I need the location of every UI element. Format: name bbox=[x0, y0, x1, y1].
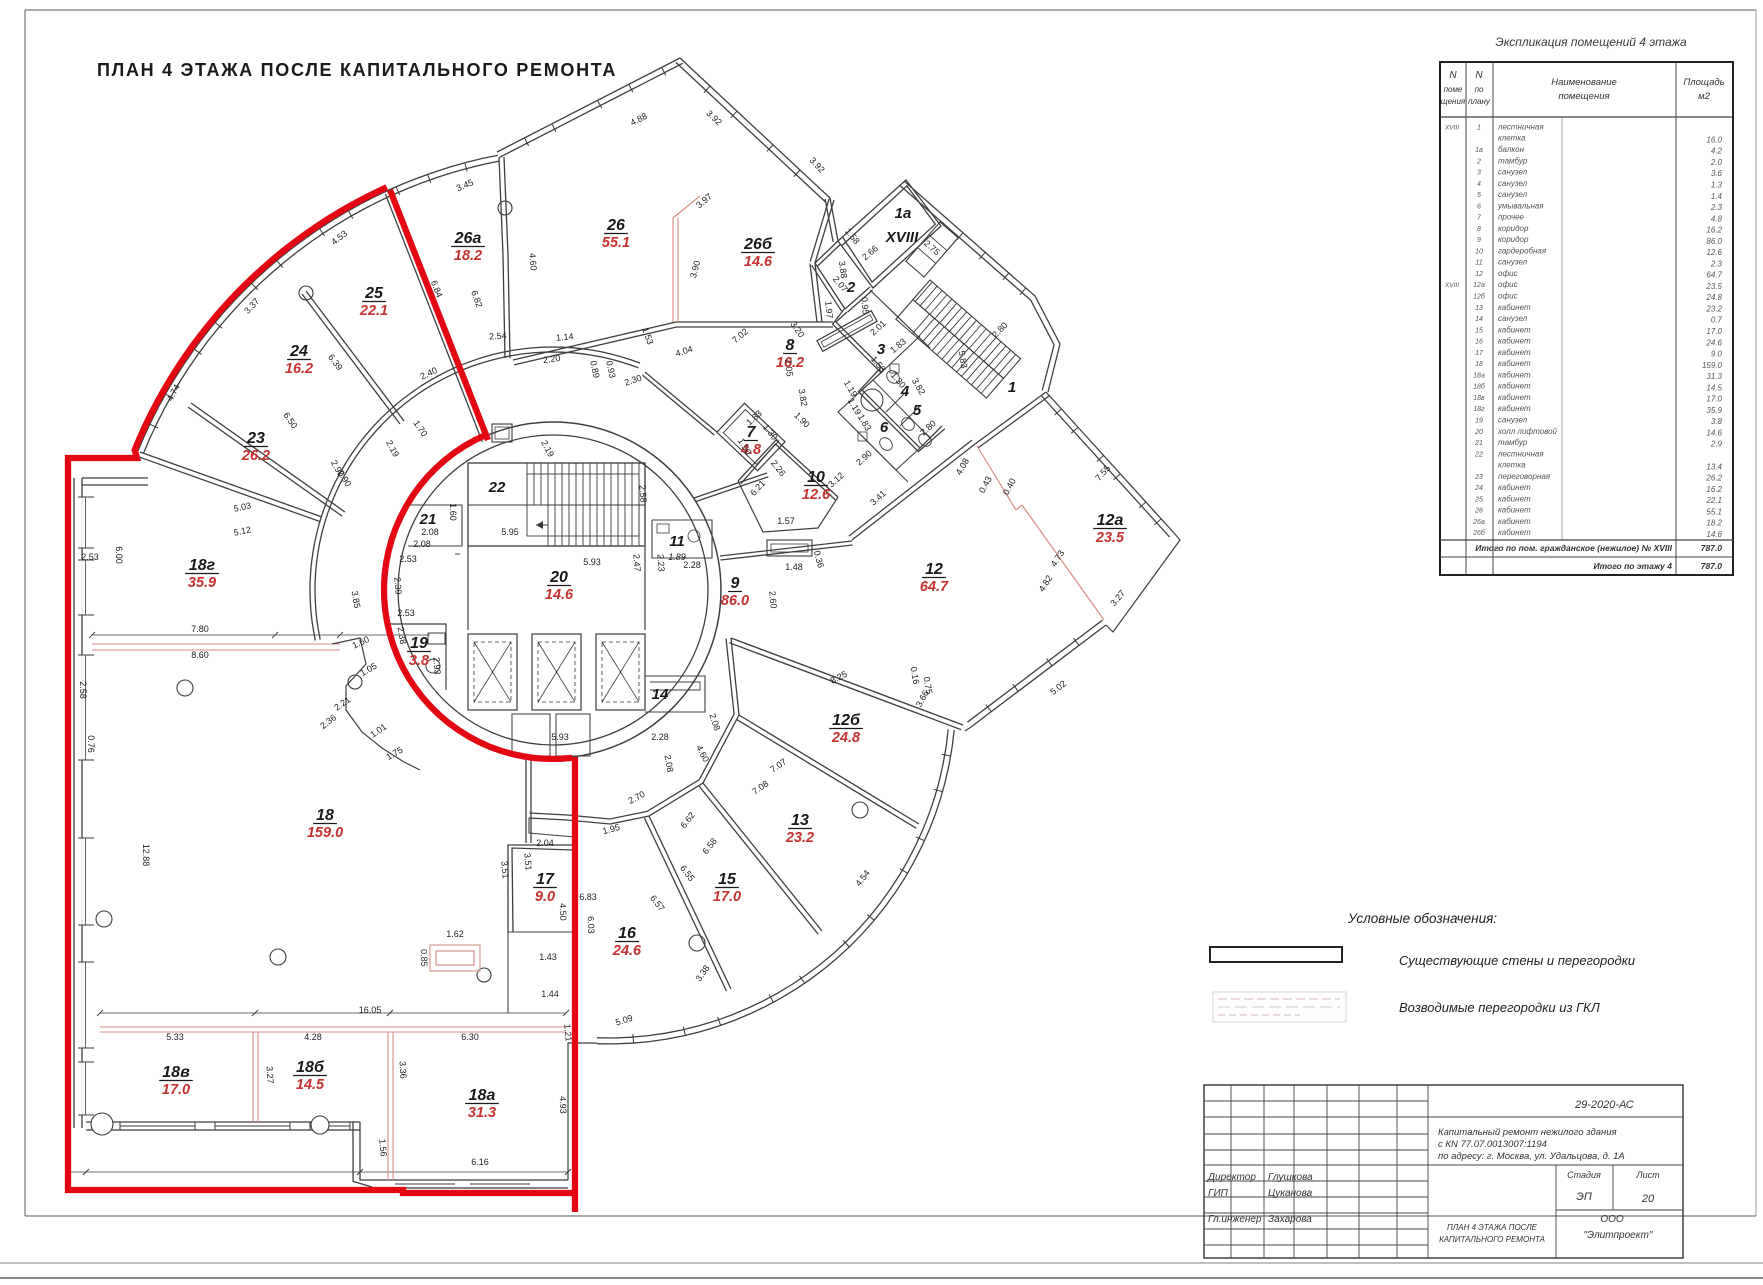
svg-text:1.60: 1.60 bbox=[448, 503, 458, 521]
svg-text:9.0: 9.0 bbox=[1711, 350, 1723, 359]
svg-text:16.2: 16.2 bbox=[285, 361, 313, 377]
svg-text:23: 23 bbox=[246, 430, 265, 447]
svg-text:2.93: 2.93 bbox=[431, 657, 442, 675]
svg-text:2.04: 2.04 bbox=[536, 838, 554, 848]
svg-text:6.00: 6.00 bbox=[114, 546, 124, 564]
svg-text:умывальная: умывальная bbox=[1497, 201, 1544, 210]
svg-text:9.0: 9.0 bbox=[535, 889, 555, 905]
svg-text:159.0: 159.0 bbox=[1702, 361, 1723, 370]
svg-text:1.56: 1.56 bbox=[377, 1139, 388, 1157]
svg-text:санузел: санузел bbox=[1498, 314, 1528, 323]
svg-text:26: 26 bbox=[606, 217, 625, 234]
svg-text:кабинет: кабинет bbox=[1498, 382, 1531, 391]
svg-text:26.2: 26.2 bbox=[241, 448, 270, 464]
svg-text:31.3: 31.3 bbox=[468, 1105, 496, 1121]
svg-text:4.28: 4.28 bbox=[304, 1032, 322, 1042]
svg-text:XVIII: XVIII bbox=[1444, 282, 1459, 289]
svg-text:14.5: 14.5 bbox=[1706, 383, 1722, 392]
svg-text:офис: офис bbox=[1498, 269, 1518, 278]
svg-text:Площадь: Площадь bbox=[1683, 77, 1724, 88]
svg-text:1.43: 1.43 bbox=[539, 952, 557, 962]
svg-text:тамбур: тамбур bbox=[1498, 438, 1528, 447]
svg-text:тамбур: тамбур bbox=[1498, 156, 1528, 165]
svg-text:20: 20 bbox=[1641, 1193, 1655, 1205]
svg-text:18: 18 bbox=[316, 807, 334, 824]
svg-text:санузел: санузел bbox=[1498, 179, 1528, 188]
svg-text:2.08: 2.08 bbox=[413, 539, 431, 549]
svg-text:прочее: прочее bbox=[1498, 213, 1525, 222]
svg-text:холл лифтовой: холл лифтовой bbox=[1497, 427, 1558, 436]
svg-text:9: 9 bbox=[1477, 237, 1481, 244]
svg-text:24: 24 bbox=[289, 343, 308, 360]
svg-text:коридор: коридор bbox=[1498, 235, 1529, 244]
svg-text:24: 24 bbox=[1474, 485, 1483, 492]
svg-text:Капитальный ремонт нежилого зд: Капитальный ремонт нежилого здания bbox=[1438, 1127, 1617, 1138]
svg-text:XVIII: XVIII bbox=[885, 229, 919, 246]
svg-text:13: 13 bbox=[1475, 305, 1483, 312]
svg-text:клетка: клетка bbox=[1498, 461, 1526, 470]
svg-text:2.47: 2.47 bbox=[631, 554, 642, 572]
svg-text:35.9: 35.9 bbox=[1706, 406, 1722, 415]
svg-text:3.51: 3.51 bbox=[522, 853, 533, 871]
svg-text:17.0: 17.0 bbox=[1706, 327, 1722, 336]
svg-text:кабинет: кабинет bbox=[1498, 393, 1531, 402]
svg-text:18г: 18г bbox=[1473, 406, 1485, 413]
svg-text:Стадия: Стадия bbox=[1567, 1170, 1601, 1180]
svg-text:20: 20 bbox=[1474, 429, 1483, 436]
svg-text:86.0: 86.0 bbox=[1706, 237, 1722, 246]
svg-text:офис: офис bbox=[1498, 292, 1518, 301]
svg-text:8.60: 8.60 bbox=[191, 650, 209, 660]
svg-text:18б: 18б bbox=[1473, 383, 1486, 391]
svg-text:2.58: 2.58 bbox=[78, 681, 88, 699]
svg-text:22: 22 bbox=[488, 479, 506, 496]
svg-text:18.2: 18.2 bbox=[1706, 519, 1722, 528]
svg-text:2.0: 2.0 bbox=[1710, 158, 1723, 167]
svg-text:2.3: 2.3 bbox=[1710, 259, 1723, 268]
svg-text:24.6: 24.6 bbox=[612, 943, 642, 959]
svg-text:переговорная: переговорная bbox=[1498, 472, 1551, 481]
svg-text:Гл.инженер: Гл.инженер bbox=[1208, 1214, 1262, 1225]
svg-text:2.23: 2.23 bbox=[655, 554, 666, 572]
svg-text:23.2: 23.2 bbox=[785, 830, 814, 846]
svg-text:23.5: 23.5 bbox=[1705, 282, 1722, 291]
svg-text:санузел: санузел bbox=[1498, 168, 1528, 177]
svg-text:КАПИТАЛЬНОГО РЕМОНТА: КАПИТАЛЬНОГО РЕМОНТА bbox=[1439, 1235, 1545, 1244]
svg-text:XVIII: XVIII bbox=[1444, 124, 1459, 131]
svg-text:1.57: 1.57 bbox=[777, 516, 795, 526]
svg-text:клетка: клетка bbox=[1498, 134, 1526, 143]
svg-text:3.27: 3.27 bbox=[265, 1066, 276, 1084]
svg-text:4: 4 bbox=[1477, 181, 1481, 188]
svg-text:кабинет: кабинет bbox=[1498, 303, 1531, 312]
svg-text:17.0: 17.0 bbox=[713, 889, 741, 905]
svg-text:17.0: 17.0 bbox=[162, 1082, 190, 1098]
svg-text:плану: плану bbox=[1468, 97, 1491, 106]
svg-text:2.28: 2.28 bbox=[651, 732, 669, 742]
svg-text:5: 5 bbox=[913, 402, 922, 419]
svg-text:17.0: 17.0 bbox=[1706, 395, 1722, 404]
svg-text:кабинет: кабинет bbox=[1498, 517, 1531, 526]
svg-text:11: 11 bbox=[669, 533, 685, 550]
svg-text:кабинет: кабинет bbox=[1498, 483, 1531, 492]
svg-text:0.95: 0.95 bbox=[859, 297, 870, 315]
svg-text:поме: поме bbox=[1444, 85, 1463, 94]
svg-text:13: 13 bbox=[791, 812, 809, 829]
svg-text:1.48: 1.48 bbox=[785, 562, 803, 572]
svg-text:15: 15 bbox=[1475, 327, 1483, 334]
svg-text:64.7: 64.7 bbox=[920, 579, 949, 595]
svg-text:9: 9 bbox=[731, 575, 740, 592]
svg-text:щения: щения bbox=[1441, 97, 1466, 106]
svg-text:балкон: балкон bbox=[1498, 145, 1525, 154]
svg-text:13.4: 13.4 bbox=[1706, 462, 1722, 471]
svg-text:16: 16 bbox=[618, 925, 636, 942]
svg-text:12.88: 12.88 bbox=[141, 844, 151, 867]
svg-text:22.1: 22.1 bbox=[359, 303, 388, 319]
svg-text:2.05: 2.05 bbox=[783, 359, 794, 377]
svg-text:21: 21 bbox=[419, 511, 437, 528]
svg-text:2.28: 2.28 bbox=[683, 560, 701, 570]
svg-text:16.2: 16.2 bbox=[1706, 485, 1722, 494]
svg-text:26а: 26а bbox=[454, 230, 482, 247]
svg-text:3.8: 3.8 bbox=[409, 653, 430, 669]
svg-text:86.0: 86.0 bbox=[721, 593, 749, 609]
svg-text:14.6: 14.6 bbox=[744, 254, 773, 270]
svg-text:20: 20 bbox=[549, 569, 568, 586]
svg-text:14.5: 14.5 bbox=[296, 1077, 325, 1093]
svg-text:Экспликация помещений 4 этажа: Экспликация помещений 4 этажа bbox=[1495, 35, 1687, 49]
svg-text:5.95: 5.95 bbox=[501, 527, 519, 537]
svg-text:1а: 1а bbox=[1475, 147, 1483, 154]
svg-text:Глушкова: Глушкова bbox=[1268, 1172, 1313, 1183]
svg-text:2.60: 2.60 bbox=[767, 591, 778, 609]
svg-text:5.33: 5.33 bbox=[166, 1032, 184, 1042]
svg-text:Существующие стены и перегород: Существующие стены и перегородки bbox=[1399, 953, 1635, 968]
svg-text:5: 5 bbox=[1477, 192, 1481, 199]
svg-text:Директор: Директор bbox=[1207, 1172, 1256, 1183]
svg-text:21: 21 bbox=[1474, 440, 1483, 447]
svg-text:1.44: 1.44 bbox=[541, 989, 559, 999]
svg-text:26: 26 bbox=[1474, 508, 1483, 515]
svg-text:22.1: 22.1 bbox=[1705, 496, 1722, 505]
svg-text:16.2: 16.2 bbox=[1706, 226, 1722, 235]
svg-text:Наименование: Наименование bbox=[1551, 77, 1617, 88]
svg-text:коридор: коридор bbox=[1498, 224, 1529, 233]
svg-text:14: 14 bbox=[652, 686, 669, 703]
svg-text:6: 6 bbox=[1477, 203, 1481, 210]
svg-text:17: 17 bbox=[1475, 350, 1484, 357]
svg-text:23.2: 23.2 bbox=[1705, 304, 1722, 313]
svg-text:6.83: 6.83 bbox=[579, 892, 597, 902]
svg-text:18в: 18в bbox=[162, 1064, 190, 1081]
svg-text:кабинет: кабинет bbox=[1498, 325, 1531, 334]
svg-text:23.5: 23.5 bbox=[1095, 530, 1125, 546]
svg-text:24.8: 24.8 bbox=[1705, 293, 1722, 302]
svg-text:5.93: 5.93 bbox=[583, 557, 601, 567]
svg-text:Цуканова: Цуканова bbox=[1268, 1188, 1313, 1199]
svg-text:6: 6 bbox=[880, 419, 889, 436]
svg-text:15: 15 bbox=[718, 871, 737, 888]
svg-text:ЭП: ЭП bbox=[1576, 1191, 1592, 1203]
svg-text:1: 1 bbox=[1008, 379, 1016, 396]
svg-text:6.16: 6.16 bbox=[471, 1157, 489, 1167]
svg-text:1.62: 1.62 bbox=[446, 929, 464, 939]
svg-text:кабинет: кабинет bbox=[1498, 370, 1531, 379]
svg-text:24.6: 24.6 bbox=[1705, 338, 1722, 347]
svg-text:55.1: 55.1 bbox=[1706, 507, 1722, 516]
svg-text:офис: офис bbox=[1498, 280, 1518, 289]
svg-text:159.0: 159.0 bbox=[307, 825, 343, 841]
svg-text:кабинет: кабинет bbox=[1498, 528, 1531, 537]
svg-text:2.54: 2.54 bbox=[489, 331, 507, 342]
svg-text:2.3: 2.3 bbox=[1710, 203, 1723, 212]
svg-text:12.6: 12.6 bbox=[802, 487, 831, 503]
svg-text:санузел: санузел bbox=[1498, 415, 1528, 424]
svg-text:35.9: 35.9 bbox=[188, 575, 216, 591]
svg-text:2.08: 2.08 bbox=[421, 527, 439, 537]
svg-text:2.53: 2.53 bbox=[399, 554, 417, 564]
svg-text:2.53: 2.53 bbox=[81, 552, 99, 562]
svg-text:"Элитпроект": "Элитпроект" bbox=[1584, 1230, 1653, 1241]
svg-text:12б: 12б bbox=[1473, 293, 1486, 301]
svg-text:18в: 18в bbox=[1473, 395, 1485, 402]
svg-text:26.2: 26.2 bbox=[1705, 474, 1722, 483]
svg-text:1а: 1а bbox=[895, 205, 912, 222]
svg-text:кабинет: кабинет bbox=[1498, 337, 1531, 346]
svg-text:787.0: 787.0 bbox=[1701, 561, 1723, 571]
svg-text:25: 25 bbox=[1474, 496, 1483, 503]
svg-text:8: 8 bbox=[786, 337, 795, 354]
svg-text:12а: 12а bbox=[1097, 512, 1124, 529]
svg-text:по: по bbox=[1475, 85, 1484, 94]
svg-text:12.6: 12.6 bbox=[1706, 248, 1722, 257]
svg-text:с КN 77.07.0013007:1194: с КN 77.07.0013007:1194 bbox=[1438, 1139, 1547, 1150]
svg-text:лестничная: лестничная bbox=[1497, 449, 1544, 458]
svg-text:1.14: 1.14 bbox=[556, 331, 574, 342]
svg-text:Возводимые перегородки из ГКЛ: Возводимые перегородки из ГКЛ bbox=[1399, 1000, 1600, 1015]
svg-text:N: N bbox=[1449, 70, 1457, 81]
svg-text:3.51: 3.51 bbox=[499, 861, 510, 879]
svg-text:64.7: 64.7 bbox=[1706, 271, 1722, 280]
svg-text:26б: 26б bbox=[1472, 529, 1486, 537]
svg-text:1.21: 1.21 bbox=[562, 1024, 573, 1042]
svg-text:ГИП: ГИП bbox=[1208, 1188, 1229, 1199]
svg-text:31.3: 31.3 bbox=[1706, 372, 1722, 381]
svg-text:Итого по пом. гражданское (неж: Итого по пом. гражданское (нежилое) № XV… bbox=[1475, 543, 1672, 553]
svg-text:12: 12 bbox=[925, 561, 943, 578]
svg-text:2.58: 2.58 bbox=[637, 485, 648, 503]
svg-text:26б: 26б bbox=[743, 236, 773, 253]
svg-text:помещения: помещения bbox=[1558, 91, 1609, 102]
svg-text:1: 1 bbox=[1477, 124, 1481, 131]
svg-text:кабинет: кабинет bbox=[1498, 494, 1531, 503]
svg-text:6.30: 6.30 bbox=[461, 1032, 479, 1042]
svg-text:24.8: 24.8 bbox=[831, 730, 861, 746]
svg-text:Условные обозначения:: Условные обозначения: bbox=[1347, 911, 1497, 926]
svg-text:18.2: 18.2 bbox=[454, 248, 482, 264]
svg-text:4.60: 4.60 bbox=[527, 253, 538, 271]
svg-text:N: N bbox=[1475, 70, 1483, 81]
svg-text:25: 25 bbox=[364, 285, 384, 302]
svg-text:Итого по этажу 4: Итого по этажу 4 bbox=[1593, 561, 1672, 571]
svg-text:10: 10 bbox=[807, 469, 825, 486]
svg-text:18б: 18б bbox=[296, 1059, 325, 1076]
svg-text:18а: 18а bbox=[1473, 372, 1485, 379]
svg-text:3.6: 3.6 bbox=[1711, 169, 1723, 178]
svg-text:санузел: санузел bbox=[1498, 258, 1528, 267]
svg-text:0.7: 0.7 bbox=[1711, 316, 1723, 325]
svg-text:11: 11 bbox=[1475, 260, 1482, 267]
svg-text:14.6: 14.6 bbox=[545, 587, 574, 603]
svg-text:2.39: 2.39 bbox=[392, 577, 403, 595]
svg-text:ООО: ООО bbox=[1600, 1214, 1624, 1225]
svg-text:кабинет: кабинет bbox=[1498, 506, 1531, 515]
svg-text:по адресу: г. Москва, ул. Удал: по адресу: г. Москва, ул. Удальцова, д. … bbox=[1438, 1151, 1625, 1162]
svg-text:19: 19 bbox=[410, 635, 428, 652]
svg-text:Захарова: Захарова bbox=[1268, 1214, 1312, 1225]
svg-text:7.80: 7.80 bbox=[191, 624, 209, 634]
svg-text:м2: м2 bbox=[1698, 91, 1711, 102]
svg-text:14: 14 bbox=[1475, 316, 1483, 323]
svg-text:2: 2 bbox=[1476, 158, 1481, 165]
svg-text:16.0: 16.0 bbox=[1706, 135, 1722, 144]
svg-text:2.9: 2.9 bbox=[1710, 440, 1723, 449]
svg-text:3: 3 bbox=[1477, 170, 1481, 177]
svg-text:14.6: 14.6 bbox=[1706, 530, 1722, 539]
svg-text:12а: 12а bbox=[1473, 282, 1485, 289]
svg-text:16: 16 bbox=[1475, 339, 1483, 346]
svg-text:1.3: 1.3 bbox=[1711, 180, 1723, 189]
svg-text:16.05: 16.05 bbox=[359, 1005, 382, 1015]
svg-text:10: 10 bbox=[1475, 248, 1483, 255]
svg-text:4.8: 4.8 bbox=[1711, 214, 1723, 223]
svg-text:санузел: санузел bbox=[1498, 190, 1528, 199]
svg-text:гардеробная: гардеробная bbox=[1498, 246, 1547, 255]
svg-text:лестничная: лестничная bbox=[1497, 122, 1544, 131]
svg-text:23: 23 bbox=[1474, 474, 1483, 481]
svg-text:0.76: 0.76 bbox=[86, 735, 96, 753]
svg-text:4.93: 4.93 bbox=[558, 1096, 569, 1114]
svg-text:кабинет: кабинет bbox=[1498, 348, 1531, 357]
svg-text:29-2020-АС: 29-2020-АС bbox=[1574, 1099, 1634, 1111]
svg-text:12б: 12б bbox=[832, 712, 861, 729]
svg-text:6.03: 6.03 bbox=[586, 916, 597, 934]
svg-text:8: 8 bbox=[1477, 226, 1481, 233]
svg-text:26а: 26а bbox=[1472, 519, 1485, 526]
svg-text:5.93: 5.93 bbox=[551, 732, 569, 742]
svg-text:4.50: 4.50 bbox=[558, 903, 569, 921]
svg-text:4.2: 4.2 bbox=[1711, 147, 1723, 156]
svg-text:55.1: 55.1 bbox=[602, 235, 630, 251]
svg-text:0.85: 0.85 bbox=[419, 949, 430, 967]
svg-text:19: 19 bbox=[1475, 417, 1483, 424]
svg-text:1.97: 1.97 bbox=[823, 301, 834, 319]
svg-text:787.0: 787.0 bbox=[1701, 543, 1723, 553]
svg-text:3.36: 3.36 bbox=[398, 1061, 409, 1079]
svg-text:кабинет: кабинет bbox=[1498, 359, 1531, 368]
svg-text:18а: 18а bbox=[469, 1087, 496, 1104]
svg-text:ПЛАН 4 ЭТАЖА ПОСЛЕ КАПИТАЛЬНО: ПЛАН 4 ЭТАЖА ПОСЛЕ КАПИТАЛЬНОГО РЕМОНТА bbox=[97, 60, 617, 80]
svg-text:Лист: Лист bbox=[1635, 1170, 1660, 1180]
svg-text:18: 18 bbox=[1475, 361, 1483, 368]
svg-text:12: 12 bbox=[1475, 271, 1483, 278]
svg-text:22: 22 bbox=[1474, 451, 1483, 458]
svg-text:ПЛАН 4 ЭТАЖА ПОСЛЕ: ПЛАН 4 ЭТАЖА ПОСЛЕ bbox=[1447, 1223, 1538, 1232]
svg-text:1.4: 1.4 bbox=[1711, 192, 1723, 201]
svg-text:3.8: 3.8 bbox=[1711, 417, 1723, 426]
svg-text:2.53: 2.53 bbox=[397, 608, 415, 618]
svg-text:14.6: 14.6 bbox=[1706, 428, 1722, 437]
svg-text:17: 17 bbox=[536, 871, 555, 888]
svg-text:кабинет: кабинет bbox=[1498, 404, 1531, 413]
svg-text:18г: 18г bbox=[189, 557, 216, 574]
